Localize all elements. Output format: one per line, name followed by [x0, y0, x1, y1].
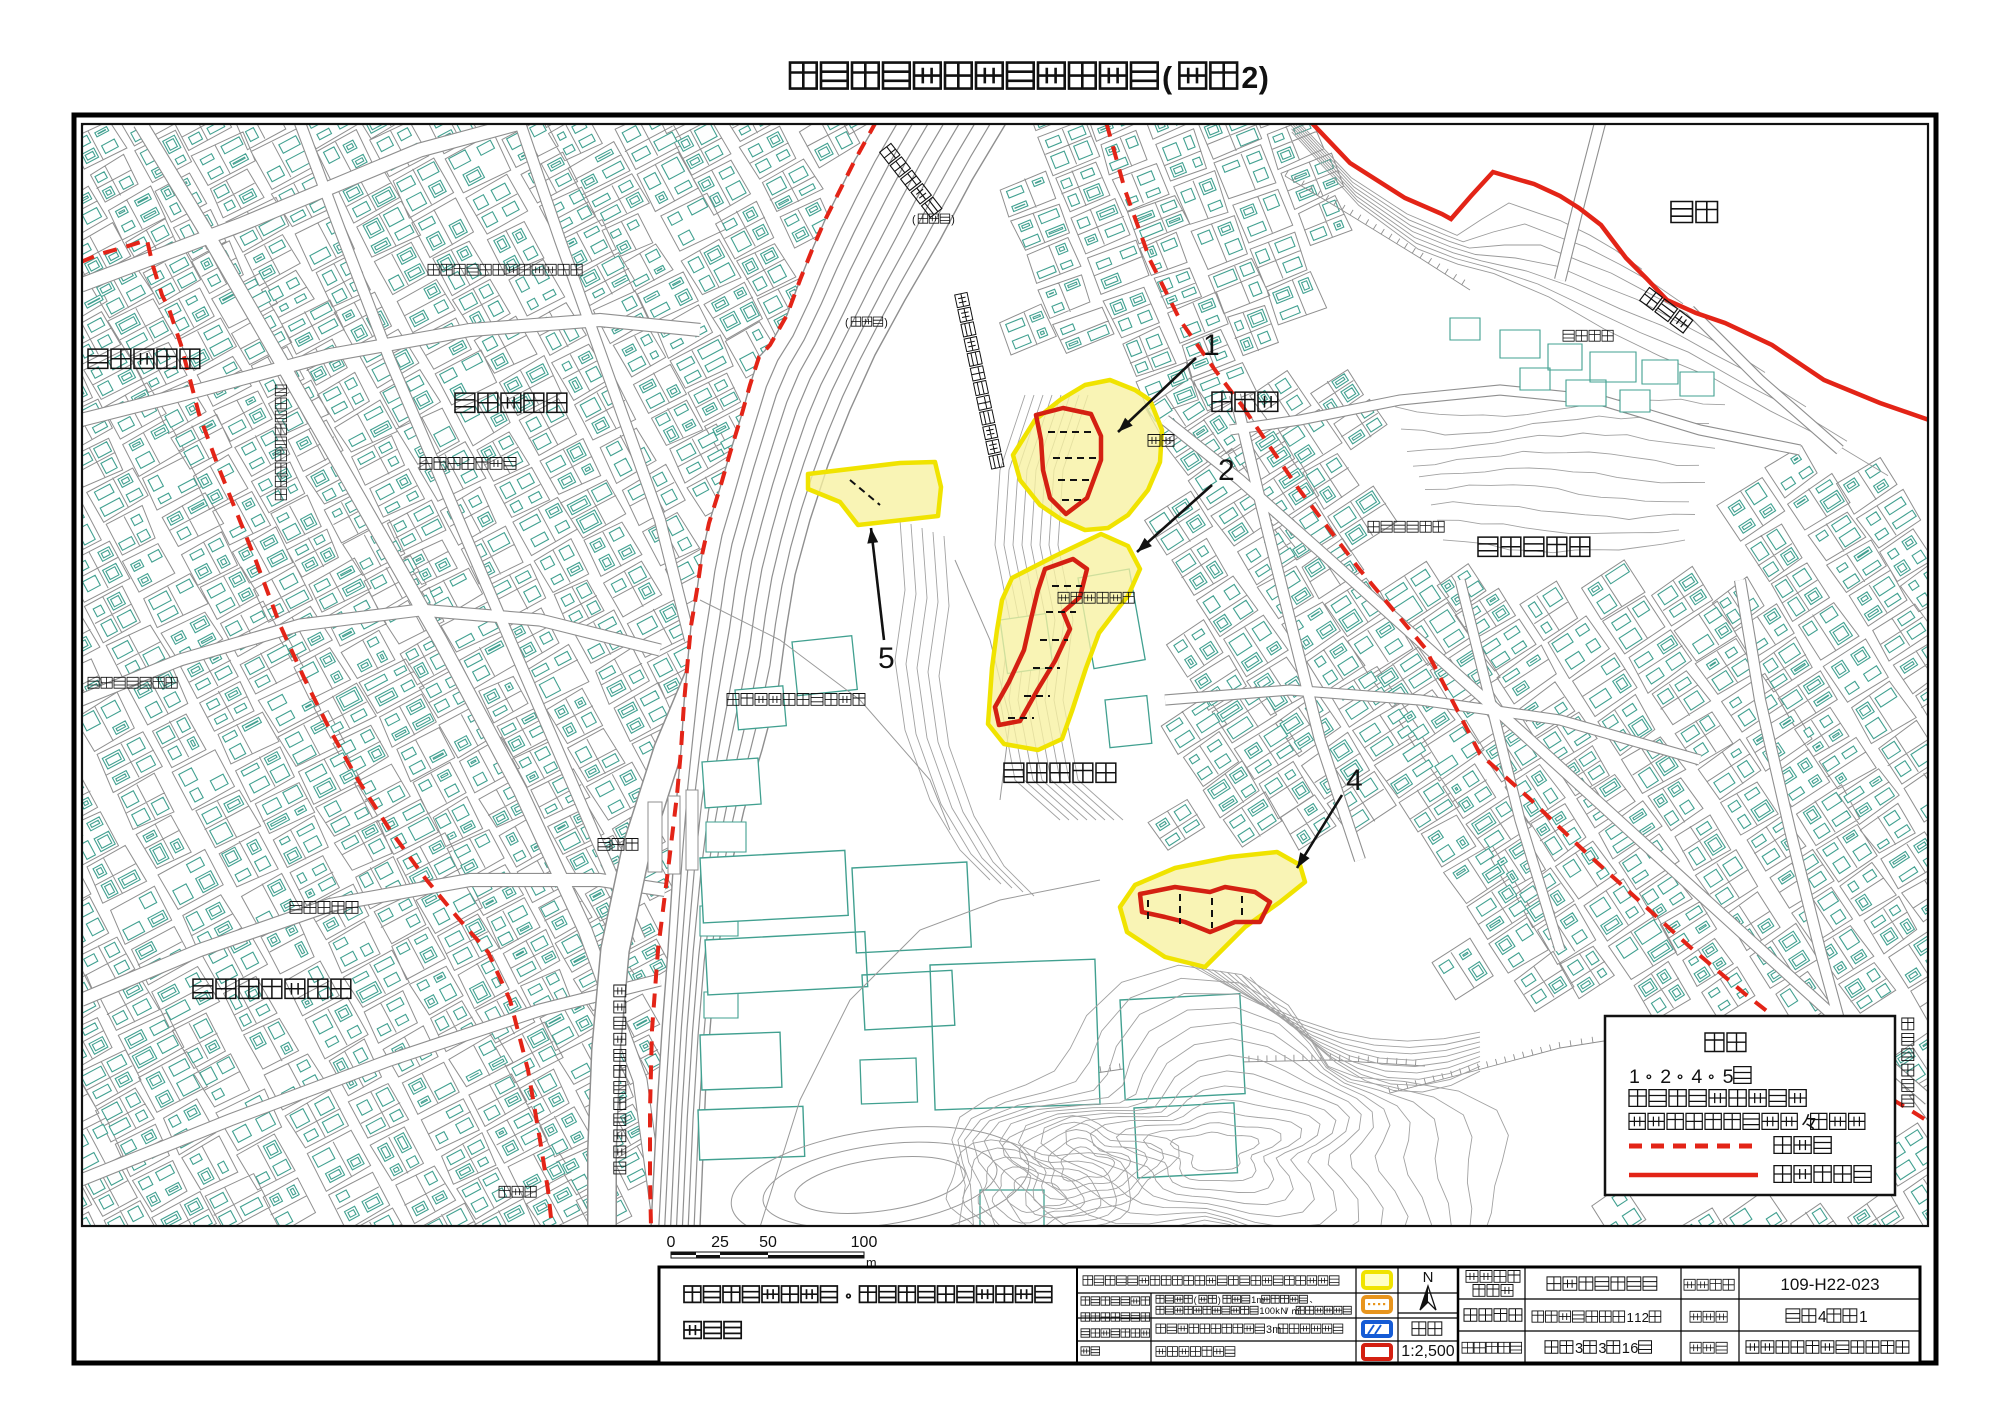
svg-text:㎡: ㎡: [1291, 1306, 1300, 1316]
svg-text:6: 6: [1630, 1341, 1638, 1357]
svg-text:々: 々: [1800, 1112, 1819, 1133]
svg-text:1: 1: [1203, 329, 1220, 362]
svg-text:(: (: [1194, 1295, 1197, 1305]
svg-text:): ): [884, 317, 888, 329]
svg-text:1: 1: [1629, 1066, 1640, 1088]
svg-text:2: 2: [1642, 1310, 1649, 1325]
svg-text:4: 4: [1818, 1309, 1827, 1326]
svg-text:k: k: [1275, 1306, 1280, 1316]
svg-text:(: (: [1162, 61, 1173, 95]
svg-text:5: 5: [878, 642, 895, 675]
svg-text:m: m: [1272, 1324, 1281, 1336]
svg-text:): ): [1259, 61, 1269, 95]
svg-text:): ): [1218, 1295, 1221, 1305]
svg-text:/: /: [1286, 1306, 1289, 1316]
svg-text:3: 3: [1575, 1341, 1583, 1357]
svg-text:3: 3: [1266, 1324, 1272, 1336]
svg-text:): ): [951, 214, 955, 226]
svg-text:5: 5: [1723, 1066, 1734, 1088]
svg-text:1: 1: [1859, 1309, 1868, 1326]
svg-text:(: (: [845, 317, 849, 329]
svg-text:25: 25: [711, 1234, 729, 1251]
svg-text:4: 4: [1346, 764, 1363, 797]
svg-text:1: 1: [1627, 1310, 1634, 1325]
svg-text:50: 50: [759, 1234, 777, 1251]
svg-text:0: 0: [667, 1234, 676, 1251]
svg-text:(: (: [912, 214, 916, 226]
svg-text:109-H22-023: 109-H22-023: [1780, 1275, 1879, 1294]
svg-text:N: N: [1423, 1269, 1434, 1286]
svg-text:4: 4: [1691, 1066, 1702, 1088]
svg-text:2: 2: [1660, 1066, 1671, 1088]
svg-text:m: m: [1256, 1295, 1264, 1305]
svg-text:3: 3: [1598, 1341, 1606, 1357]
svg-text:1:2,500: 1:2,500: [1401, 1343, 1454, 1360]
svg-text:2: 2: [1241, 61, 1258, 95]
svg-text:2: 2: [1218, 454, 1235, 487]
svg-text:1: 1: [1622, 1341, 1630, 1357]
svg-text:1: 1: [1634, 1310, 1641, 1325]
svg-text:100: 100: [851, 1234, 878, 1251]
